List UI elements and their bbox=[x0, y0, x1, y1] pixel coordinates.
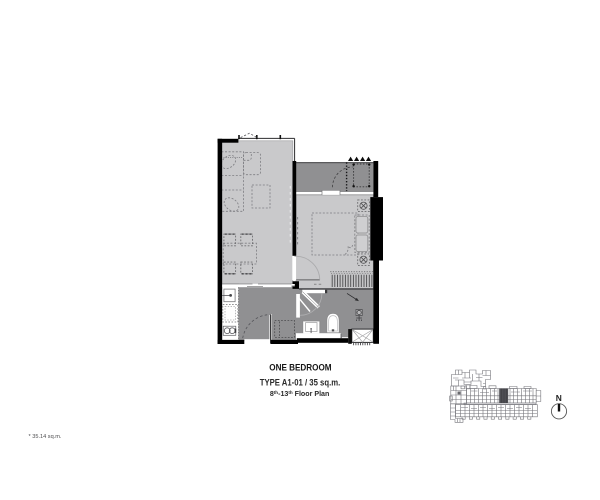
svg-text:N: N bbox=[556, 393, 562, 403]
svg-text:TYPE A1-01 / 35 sq.m.: TYPE A1-01 / 35 sq.m. bbox=[260, 378, 341, 388]
svg-text:* 35.14 sq.m.: * 35.14 sq.m. bbox=[29, 434, 62, 440]
svg-text:8th-13th Floor Plan: 8th-13th Floor Plan bbox=[270, 390, 330, 398]
svg-text:ONE BEDROOM: ONE BEDROOM bbox=[269, 363, 331, 373]
